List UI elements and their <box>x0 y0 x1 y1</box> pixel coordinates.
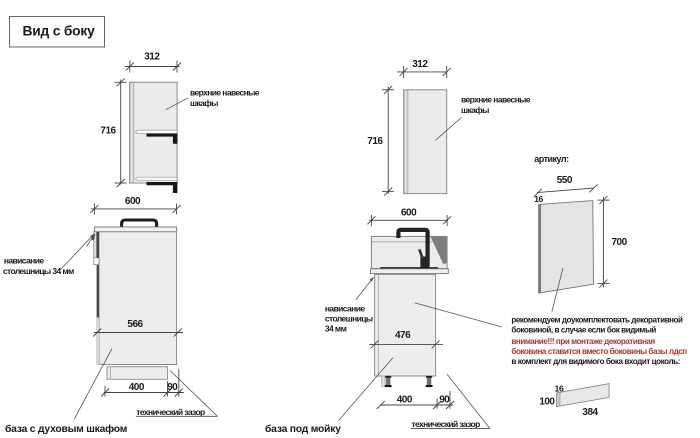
svg-text:16: 16 <box>534 194 543 204</box>
svg-text:боковиной, в случае если бок в: боковиной, в случае если бок видимый <box>511 326 656 335</box>
svg-text:400: 400 <box>129 382 145 393</box>
svg-text:шкафы: шкафы <box>461 105 489 115</box>
svg-text:566: 566 <box>127 319 143 330</box>
svg-text:100: 100 <box>539 396 555 407</box>
svg-text:технический зазор: технический зазор <box>136 407 205 417</box>
svg-text:716: 716 <box>367 136 383 147</box>
svg-text:716: 716 <box>100 126 116 137</box>
svg-text:столешницы 34 мм: столешницы 34 мм <box>3 266 74 276</box>
svg-text:база с духовым шкафом: база с духовым шкафом <box>5 423 127 435</box>
svg-text:600: 600 <box>401 207 417 218</box>
svg-text:34 мм: 34 мм <box>325 324 347 334</box>
svg-text:Вид с боку: Вид с боку <box>23 23 96 38</box>
svg-text:400: 400 <box>397 394 413 405</box>
svg-text:столешницы: столешницы <box>325 314 373 324</box>
svg-text:700: 700 <box>612 237 628 248</box>
svg-text:верхние навесные: верхние навесные <box>461 94 531 104</box>
svg-text:90: 90 <box>167 382 178 393</box>
svg-text:боковина ставится вместо боков: боковина ставится вместо боковины базы л… <box>511 347 687 356</box>
svg-text:шкафы: шкафы <box>190 98 218 108</box>
svg-text:база под мойку: база под мойку <box>265 423 341 435</box>
svg-text:312: 312 <box>412 59 428 70</box>
svg-text:артикул:: артикул: <box>534 154 569 164</box>
svg-text:технический зазор: технический зазор <box>411 419 480 429</box>
svg-text:внимание!!! при монтаже декора: внимание!!! при монтаже декоративная <box>511 337 655 346</box>
svg-text:600: 600 <box>125 196 141 207</box>
svg-text:312: 312 <box>144 52 160 63</box>
svg-text:рекомендуем доукомплектовать д: рекомендуем доукомплектовать декоративно… <box>511 315 683 324</box>
svg-text:90: 90 <box>439 394 450 405</box>
svg-text:нависание: нависание <box>325 303 365 313</box>
svg-text:476: 476 <box>395 330 411 341</box>
svg-text:384: 384 <box>582 407 598 418</box>
svg-text:верхние навесные: верхние навесные <box>190 88 260 98</box>
svg-text:16: 16 <box>555 383 564 393</box>
svg-text:в комплект для видимого бока в: в комплект для видимого бока входит цоко… <box>511 357 680 366</box>
svg-text:550: 550 <box>557 175 573 186</box>
svg-text:нависание: нависание <box>4 256 44 266</box>
